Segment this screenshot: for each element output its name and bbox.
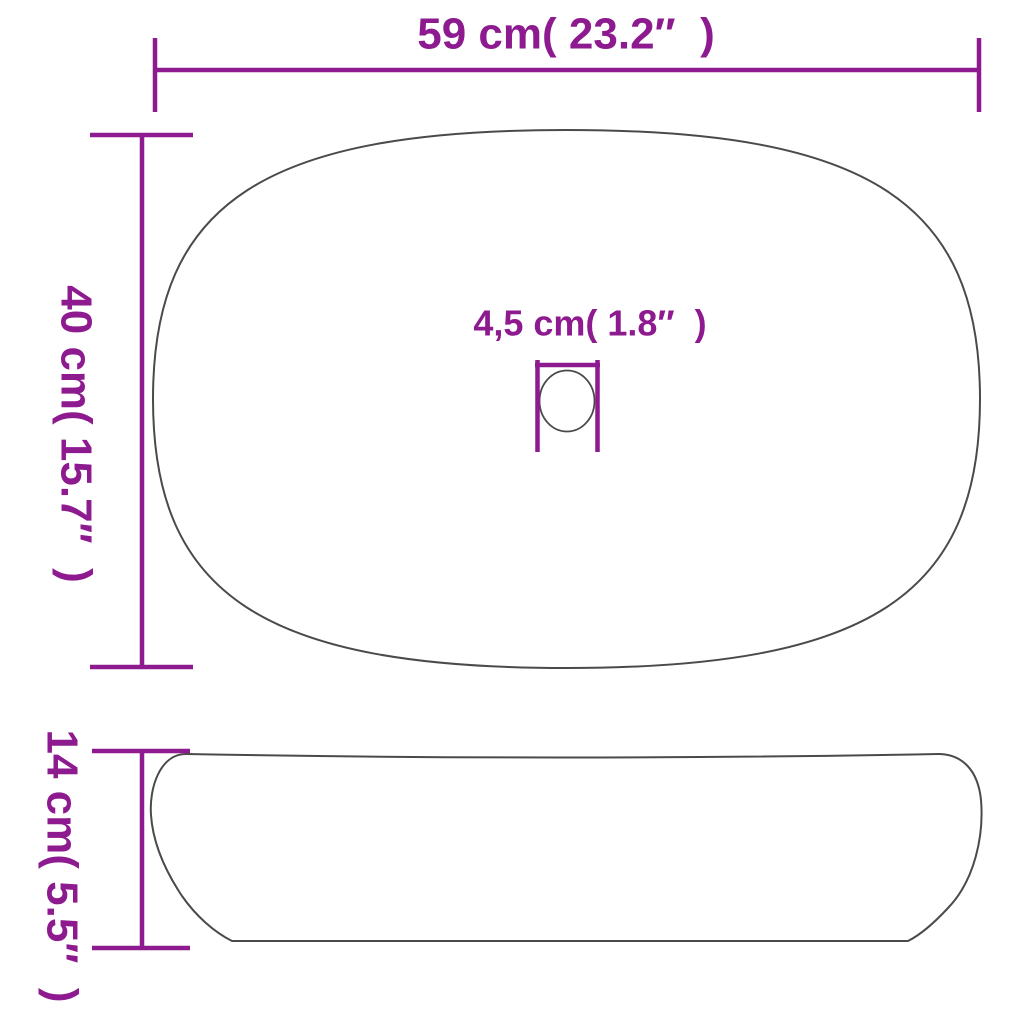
depth-dimension-label: 40 cm( 15.7″ ) — [52, 285, 101, 582]
diagram-canvas: 4,5 cm( 1.8″ ) 59 cm( 23.2″ ) 40 cm( 15.… — [0, 0, 1024, 1024]
basin-top-view-outline — [153, 130, 980, 668]
drain-hole-outline — [540, 371, 595, 432]
width-dimension-label: 59 cm( 23.2″ ) — [417, 10, 714, 59]
drain-dimension: 4,5 cm( 1.8″ ) — [473, 303, 706, 453]
height-dimension: 14 cm( 5.5″ ) — [38, 730, 191, 1003]
basin-side-view-outline — [151, 754, 982, 941]
drain-dimension-label: 4,5 cm( 1.8″ ) — [473, 303, 706, 344]
height-dimension-label: 14 cm( 5.5″ ) — [38, 730, 87, 1003]
depth-dimension: 40 cm( 15.7″ ) — [52, 135, 194, 667]
width-dimension: 59 cm( 23.2″ ) — [155, 10, 979, 113]
sink-dimension-diagram: 4,5 cm( 1.8″ ) 59 cm( 23.2″ ) 40 cm( 15.… — [0, 0, 1024, 1024]
